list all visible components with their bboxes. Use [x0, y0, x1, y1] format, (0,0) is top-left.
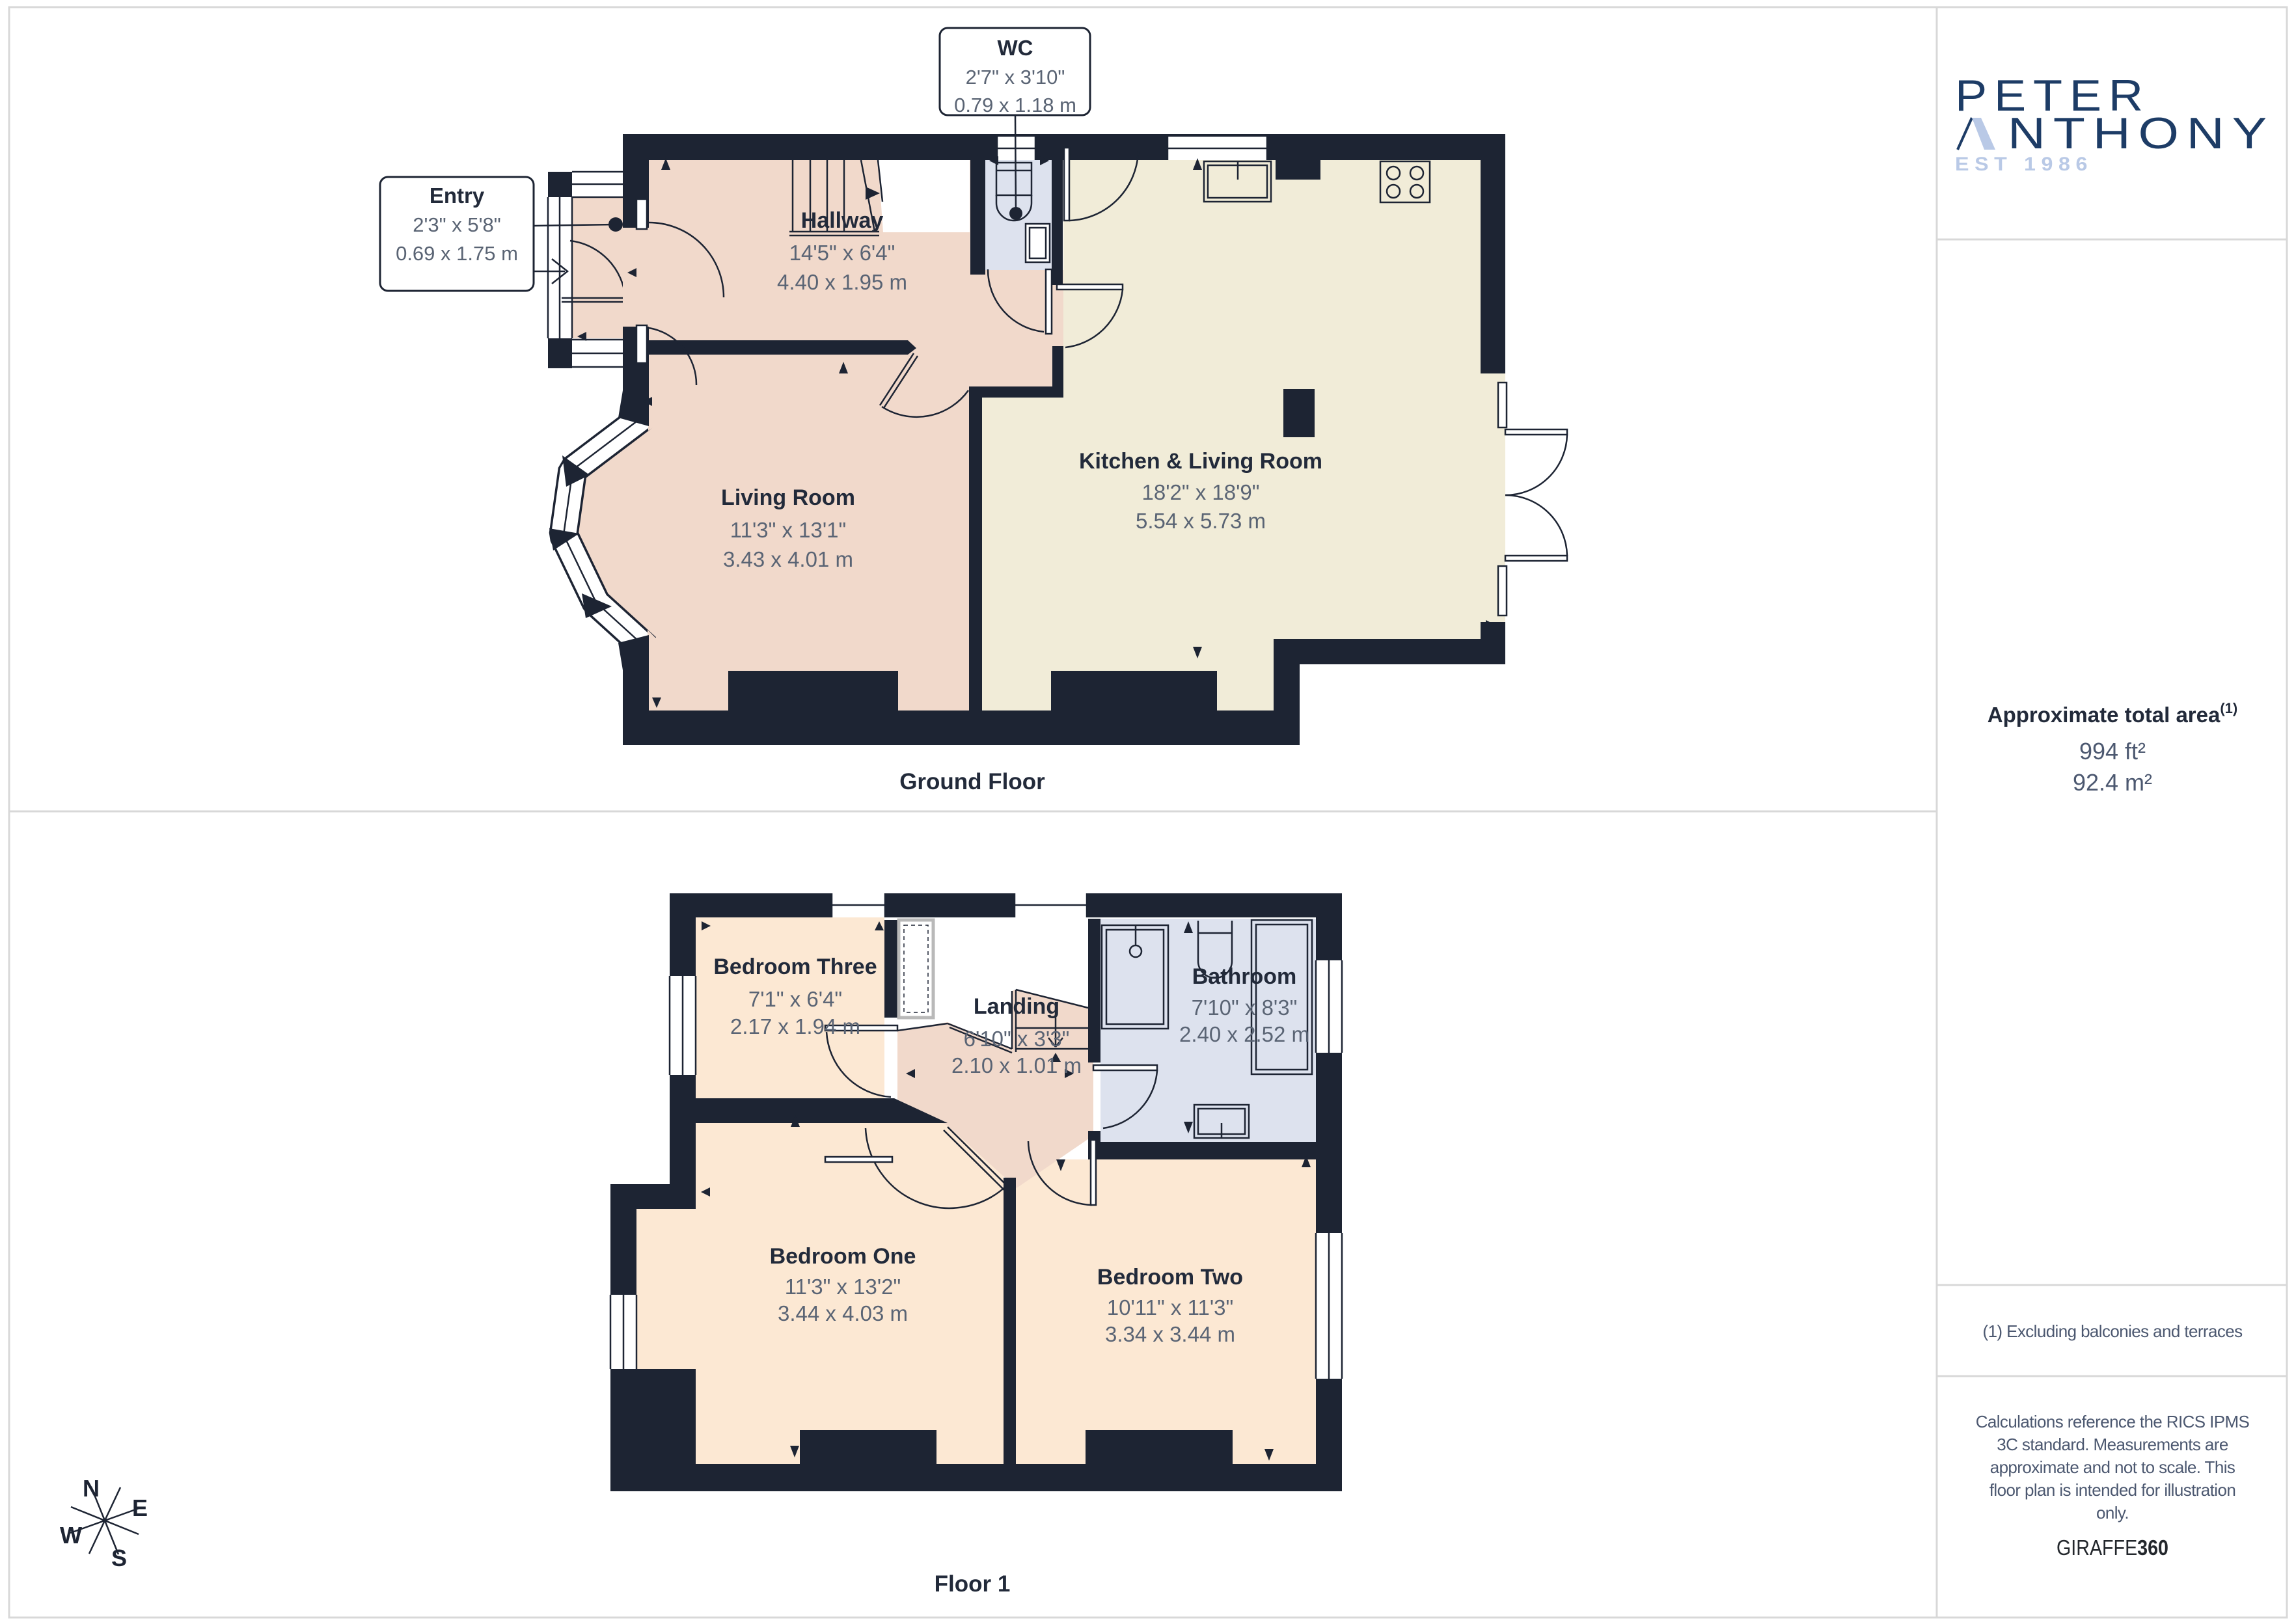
svg-text:2.10 x 1.01 m: 2.10 x 1.01 m [951, 1053, 1082, 1077]
svg-text:Bathroom: Bathroom [1192, 964, 1297, 989]
svg-text:3.34 x 3.44 m: 3.34 x 3.44 m [1105, 1322, 1235, 1346]
svg-text:3.43 x 4.01 m: 3.43 x 4.01 m [723, 547, 853, 571]
svg-text:3.44 x 4.03 m: 3.44 x 4.03 m [778, 1301, 908, 1325]
svg-text:2'7" x 3'10": 2'7" x 3'10" [966, 66, 1065, 88]
svg-text:N: N [83, 1475, 100, 1502]
svg-text:floor plan is intended for ill: floor plan is intended for illustration [1989, 1480, 2235, 1500]
svg-text:E: E [132, 1495, 148, 1521]
svg-text:NTHONY: NTHONY [2008, 109, 2275, 158]
svg-text:10'11" x 11'3": 10'11" x 11'3" [1107, 1295, 1233, 1319]
svg-text:2.17 x 1.94 m: 2.17 x 1.94 m [730, 1014, 860, 1038]
svg-text:7'10" x 8'3": 7'10" x 8'3" [1192, 995, 1298, 1020]
svg-text:2'3" x 5'8": 2'3" x 5'8" [413, 213, 501, 236]
svg-text:approximate and not to scale.: approximate and not to scale. This [1990, 1457, 2235, 1477]
svg-text:11'3" x 13'2": 11'3" x 13'2" [785, 1275, 901, 1299]
svg-text:EST 1986: EST 1986 [1955, 154, 2093, 175]
svg-text:92.4 m²: 92.4 m² [2073, 769, 2152, 796]
svg-text:5.54 x 5.73 m: 5.54 x 5.73 m [1136, 509, 1266, 533]
svg-text:Landing: Landing [974, 994, 1059, 1019]
svg-text:Bedroom One: Bedroom One [770, 1244, 916, 1269]
svg-text:Ground Floor: Ground Floor [899, 769, 1045, 794]
svg-text:only.: only. [2096, 1503, 2129, 1522]
svg-text:0.69 x 1.75 m: 0.69 x 1.75 m [396, 242, 518, 265]
svg-text:Bedroom Two: Bedroom Two [1097, 1265, 1243, 1290]
svg-text:0.79 x 1.18 m: 0.79 x 1.18 m [954, 94, 1076, 116]
svg-text:Approximate total area(1): Approximate total area(1) [1988, 700, 2238, 727]
svg-text:18'2" x 18'9": 18'2" x 18'9" [1142, 480, 1260, 504]
svg-text:6'10" x 3'3": 6'10" x 3'3" [964, 1027, 1070, 1051]
svg-text:994 ft²: 994 ft² [2079, 738, 2146, 765]
svg-text:WC: WC [998, 36, 1033, 60]
svg-text:Bedroom Three: Bedroom Three [713, 954, 877, 979]
svg-text:(1) Excluding balconies and te: (1) Excluding balconies and terraces [1983, 1321, 2243, 1341]
svg-text:Entry: Entry [430, 183, 485, 208]
svg-text:7'1" x 6'4": 7'1" x 6'4" [748, 987, 842, 1011]
svg-text:S: S [111, 1545, 127, 1571]
svg-text:Kitchen & Living Room: Kitchen & Living Room [1079, 449, 1322, 474]
svg-text:14'5" x 6'4": 14'5" x 6'4" [789, 241, 895, 265]
svg-text:Living Room: Living Room [721, 485, 855, 510]
svg-text:Calculations reference the RIC: Calculations reference the RICS IPMS [1976, 1412, 2250, 1431]
svg-text:Floor 1: Floor 1 [935, 1571, 1011, 1597]
svg-text:11'3" x 13'1": 11'3" x 13'1" [730, 518, 847, 542]
svg-text:4.40 x 1.95 m: 4.40 x 1.95 m [777, 270, 907, 294]
svg-text:W: W [60, 1522, 82, 1549]
svg-text:Hallway: Hallway [801, 208, 884, 233]
svg-text:3C standard. Measurements are: 3C standard. Measurements are [1997, 1435, 2228, 1454]
svg-text:GIRAFFE360: GIRAFFE360 [2057, 1536, 2168, 1560]
svg-text:2.40 x 2.52 m: 2.40 x 2.52 m [1179, 1022, 1309, 1046]
